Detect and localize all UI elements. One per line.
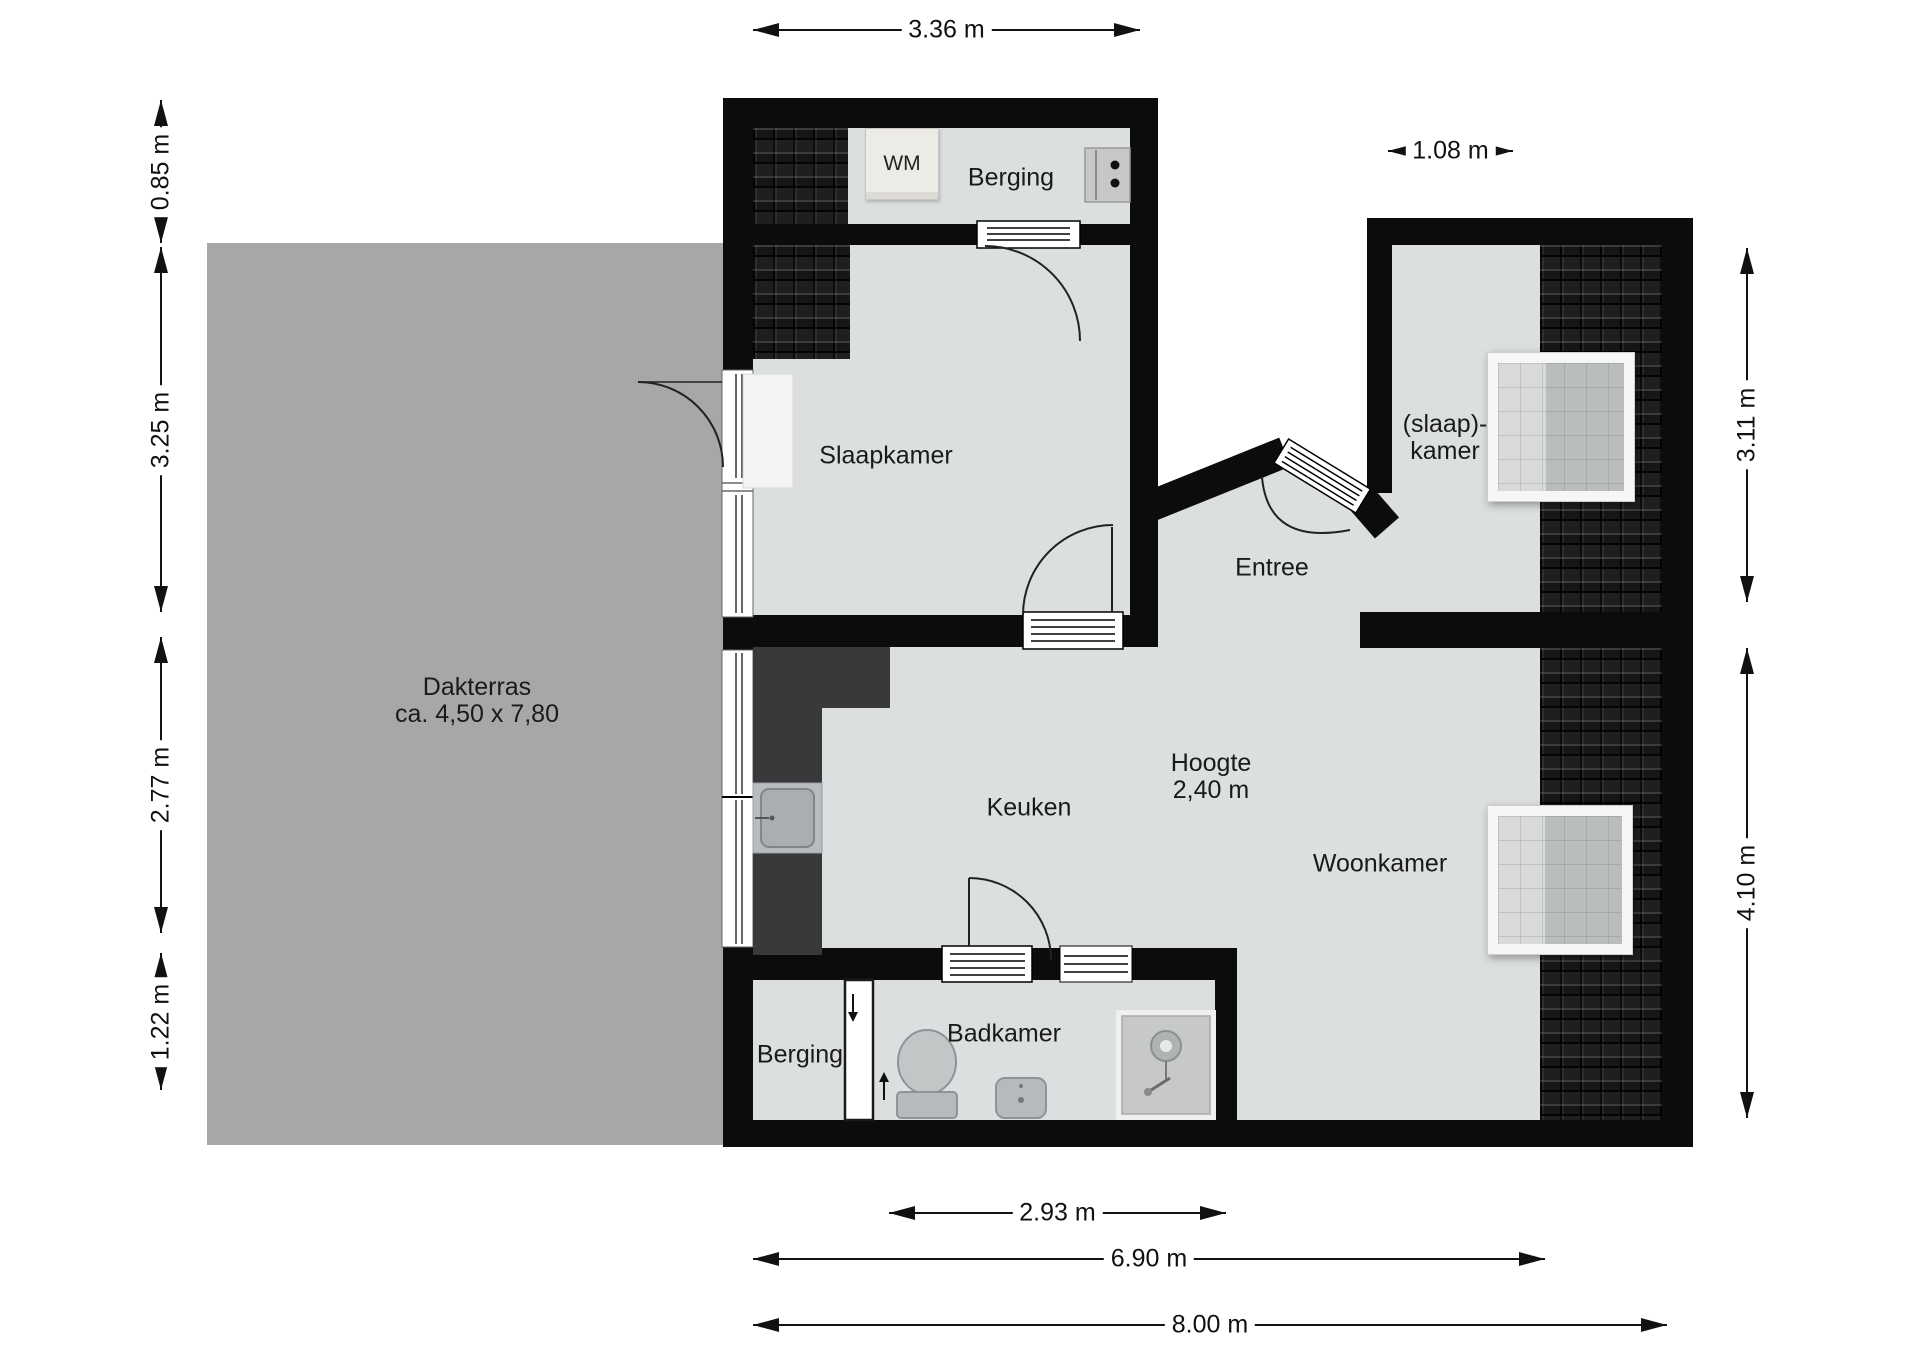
label-woonkamer: Woonkamer xyxy=(1313,851,1447,878)
stove-appliance xyxy=(1085,148,1130,202)
wall-berging-divider-right xyxy=(1080,224,1158,245)
wall-badkamer-right xyxy=(1215,948,1237,1120)
wall-entree-diagonal-stub xyxy=(1360,497,1387,528)
dimension-arrowhead xyxy=(1740,576,1754,602)
label-berging-top: Berging xyxy=(968,165,1054,192)
floor-plan: WM Berging Slaapkamer (slaap)- kamer Ent… xyxy=(0,0,1920,1358)
dimension-arrowhead xyxy=(1740,1092,1754,1118)
roof-window-woonkamer xyxy=(1487,805,1633,955)
roof-window-slaapkamer2 xyxy=(1487,352,1635,502)
label-slaapkamer: Slaapkamer xyxy=(819,443,952,470)
dimension-arrowhead xyxy=(154,217,168,243)
dimension-label: 8.00 m xyxy=(1165,1311,1255,1340)
dimension-arrowhead xyxy=(753,1252,779,1266)
dimension-arrowhead xyxy=(1200,1206,1226,1220)
dimension-arrowhead xyxy=(1740,248,1754,274)
label-dakterras: Dakterras ca. 4,50 x 7,80 xyxy=(395,674,559,728)
label-entree: Entree xyxy=(1235,555,1309,582)
dimension-label: 6.90 m xyxy=(1104,1245,1194,1274)
dimension-arrowhead xyxy=(1519,1252,1545,1266)
label-keuken: Keuken xyxy=(987,795,1072,822)
dimension-label: 4.10 m xyxy=(1733,838,1762,928)
dimension-label: 3.25 m xyxy=(147,384,176,474)
label-slaapkamer2: (slaap)- kamer xyxy=(1403,411,1488,465)
dimension-arrowhead xyxy=(1740,648,1754,674)
window-badkamer xyxy=(1060,946,1132,982)
dimension-arrowhead xyxy=(753,23,779,37)
exterior-void xyxy=(1158,98,1367,496)
label-berging-bottom: Berging xyxy=(757,1042,843,1069)
wall-rightsection-top xyxy=(1367,218,1693,245)
dimension-label: 1.08 m xyxy=(1405,137,1495,166)
dimension-arrowhead xyxy=(154,247,168,273)
dimension-label: 3.11 m xyxy=(1733,381,1762,470)
wall-slaapkamer-bottom-left xyxy=(723,615,1023,647)
wall-topblock-right xyxy=(1130,98,1158,640)
wall-left-mid xyxy=(723,617,753,650)
dimension-label: 3.36 m xyxy=(901,16,991,45)
kitchen-sink xyxy=(753,783,822,853)
dimension-arrowhead xyxy=(1641,1318,1667,1332)
dimension-arrowhead xyxy=(154,637,168,663)
wall-slaapkamer-bottom-right xyxy=(1123,615,1158,647)
dimension-arrowhead xyxy=(154,907,168,933)
shower xyxy=(1116,1010,1216,1120)
wall-badkamer-top-mid xyxy=(1032,948,1060,980)
roof-window-glass xyxy=(1498,363,1624,491)
wall-rightsection-left xyxy=(1367,218,1392,493)
label-hoogte: Hoogte 2,40 m xyxy=(1171,750,1252,804)
label-badkamer: Badkamer xyxy=(947,1021,1061,1048)
dimension-arrowhead xyxy=(889,1206,915,1220)
roof-window-glass xyxy=(1498,816,1622,944)
wall-right xyxy=(1662,218,1693,1147)
dimension-arrowhead xyxy=(154,100,168,126)
roof-tiles-slaapkamer xyxy=(753,245,850,359)
washbasin xyxy=(996,1078,1046,1118)
washing-machine: WM xyxy=(865,128,939,200)
dimension-label: 1.22 m xyxy=(147,976,176,1066)
wall-berging-divider-left xyxy=(723,224,977,245)
dimension-arrowhead xyxy=(154,953,168,979)
dimension-arrowhead xyxy=(154,1064,168,1090)
roof-tiles-berging xyxy=(753,128,848,224)
dimension-arrowhead xyxy=(154,586,168,612)
wall-top xyxy=(723,98,1158,128)
window-keuken xyxy=(722,650,753,947)
dimension-label: 2.77 m xyxy=(147,740,176,830)
dimension-arrowhead xyxy=(1114,23,1140,37)
dimension-label: 2.93 m xyxy=(1012,1199,1102,1228)
wall-bottom xyxy=(723,1120,1693,1147)
wall-woonkamer-divider xyxy=(1360,612,1693,648)
door-leaf-panel xyxy=(743,374,793,488)
dimension-arrowhead xyxy=(753,1318,779,1332)
wm-label: WM xyxy=(883,152,920,176)
dimension-label: 0.85 m xyxy=(147,126,176,216)
